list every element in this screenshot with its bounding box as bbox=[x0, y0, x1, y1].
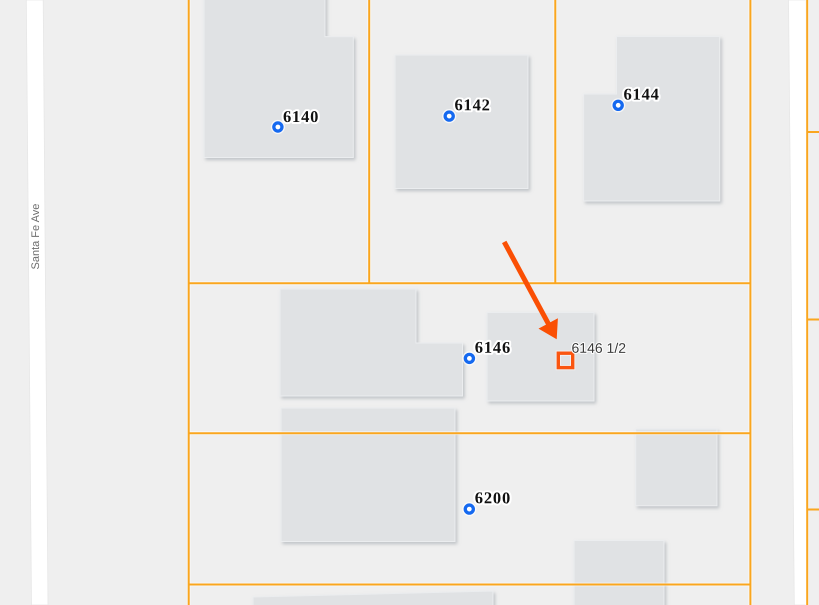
svg-text:6146 1/2: 6146 1/2 bbox=[571, 340, 626, 356]
svg-text:6140: 6140 bbox=[283, 107, 319, 126]
svg-text:6200: 6200 bbox=[475, 488, 511, 507]
svg-text:6144: 6144 bbox=[623, 85, 659, 104]
svg-text:6142: 6142 bbox=[454, 95, 490, 114]
svg-text:6146: 6146 bbox=[475, 338, 511, 357]
svg-text:Santa Fe Ave: Santa Fe Ave bbox=[30, 204, 42, 270]
